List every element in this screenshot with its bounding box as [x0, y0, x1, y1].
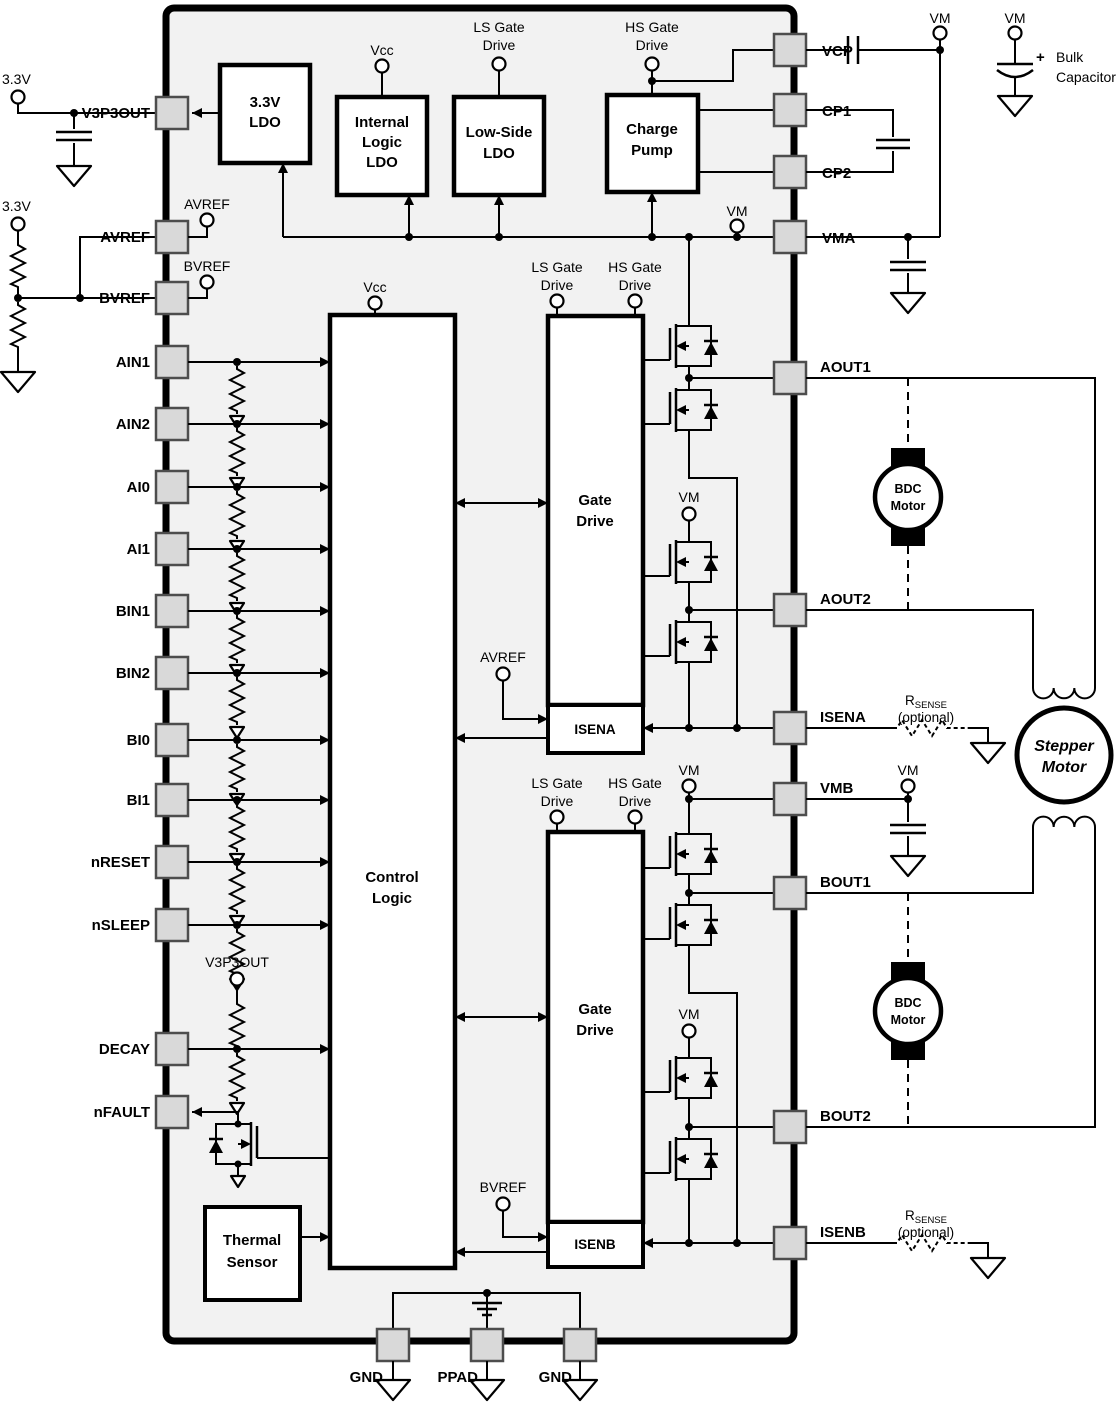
ground-icon [971, 743, 1005, 763]
pin-label-aout2: AOUT2 [820, 591, 871, 608]
pin-vcp [774, 34, 806, 66]
schematic-canvas: 3.3V LDO Internal Logic LDO Low-Side LDO… [0, 0, 1118, 1411]
block-lsldo-label: Low-Side [466, 124, 533, 141]
vm-b-top-terminal-icon [683, 780, 696, 793]
bdc-motor-b: BDC Motor [875, 893, 941, 1127]
pin-gnd-2 [564, 1329, 596, 1361]
pin-label-nfault: nFAULT [94, 1104, 150, 1121]
vm-a-mid-terminal-icon [683, 508, 696, 521]
pin-label-ai1: AI1 [127, 541, 150, 558]
isena-rsense: RSENSE (optional) [806, 693, 1005, 763]
hs-gate-terminal-label2: Drive [636, 37, 669, 53]
block-illdo-label: Internal [355, 114, 409, 131]
pin-label-bin1: BIN1 [116, 603, 150, 620]
vm-bulk-label: VM [1005, 10, 1026, 26]
supply-3v3-terminal-icon2 [12, 218, 25, 231]
bulk-capacitor: VM + Bulk Capacitor [997, 10, 1116, 116]
ground-icon [1, 372, 35, 392]
block-gdb-label2: Drive [576, 1022, 614, 1039]
bvref-isenb-label: BVREF [480, 1179, 527, 1195]
bdc-b-label: BDC [894, 996, 921, 1010]
bvref-terminal-icon [201, 276, 214, 289]
pin-label-bvref: BVREF [99, 290, 150, 307]
bdc-a-label: BDC [894, 482, 921, 496]
vm-vmb-terminal-icon [902, 780, 915, 793]
pin-label-isenb: ISENB [820, 1224, 866, 1241]
hs-gdb-terminal-icon [629, 811, 642, 824]
stepper-winding-b-icon [1033, 817, 1095, 827]
pin-bi1 [156, 784, 188, 816]
hs-gda-terminal-icon [629, 295, 642, 308]
pin-label-ppad: PPAD [437, 1369, 478, 1386]
pin-v3p3out [156, 97, 188, 129]
bulk-label2: Capacitor [1056, 69, 1116, 85]
block-cp-label2: Pump [631, 142, 673, 159]
control-logic: Vcc Control Logic [330, 279, 455, 1268]
vm-vcp-terminal-icon [934, 27, 947, 40]
bdc-motor-a-icon [875, 464, 941, 530]
vm-bulk-terminal-icon [1009, 27, 1022, 40]
bvref-terminal-label: BVREF [184, 258, 231, 274]
block-gda-label2: Drive [576, 513, 614, 530]
ls-gdb-label2: Drive [541, 793, 574, 809]
pin-bvref [156, 282, 188, 314]
pin-label-ai0: AI0 [127, 479, 150, 496]
pin-nsleep [156, 909, 188, 941]
pin-label-v3p3out: V3P3OUT [82, 105, 150, 122]
hs-gda-label: HS Gate [608, 259, 662, 275]
block-cl-label: Control [365, 869, 418, 886]
v3p3out-terminal-label: V3P3OUT [205, 954, 269, 970]
block-cl-label2: Logic [372, 890, 412, 907]
pin-label-isena: ISENA [820, 709, 866, 726]
bdc-motor-a: BDC Motor [875, 378, 941, 610]
pin-label-avref: AVREF [100, 229, 150, 246]
vcc-terminal-label: Vcc [370, 42, 393, 58]
ls-gate-terminal-icon [493, 58, 506, 71]
ground-icon [891, 293, 925, 313]
pin-label-vmb: VMB [820, 780, 854, 797]
ground-icon [57, 166, 91, 186]
pin-label-bout2: BOUT2 [820, 1108, 871, 1125]
block-cp-label: Charge [626, 121, 678, 138]
pin-avref [156, 221, 188, 253]
pin-label-aout1: AOUT1 [820, 359, 871, 376]
bdc-a-label2: Motor [891, 499, 926, 513]
vm-terminal-label: VM [727, 203, 748, 219]
pin-vma [774, 221, 806, 253]
avref-terminal-label: AVREF [184, 196, 230, 212]
bvref-isenb-terminal-icon [497, 1198, 510, 1211]
right-externals: VM VM + Bulk Capacitor Stepper Motor [806, 10, 1116, 1278]
pin-label-decay: DECAY [99, 1041, 150, 1058]
vm-b-mid-terminal-icon [683, 1025, 696, 1038]
block-3v3-ldo-label2: LDO [249, 114, 281, 131]
ls-gda-terminal-icon [551, 295, 564, 308]
plus-sign: + [1036, 49, 1045, 66]
vcc-terminal-icon [376, 60, 389, 73]
pin-decay [156, 1033, 188, 1065]
ls-gdb-label: LS Gate [531, 775, 583, 791]
pin-bi0 [156, 724, 188, 756]
pin-isenb [774, 1227, 806, 1259]
chip-outline [166, 8, 794, 1341]
rsense-b-label: RSENSE [905, 1208, 947, 1226]
block-isenb-label: ISENB [574, 1237, 616, 1252]
pin-label-cp1: CP1 [822, 103, 851, 120]
pin-label-gnd1: GND [350, 1369, 384, 1386]
pin-label-cp2: CP2 [822, 165, 851, 182]
supply-3v3-terminal-icon [12, 91, 25, 104]
block-control-logic [330, 315, 455, 1268]
ground-icon [998, 96, 1032, 116]
pin-label-gnd2: GND [539, 1369, 573, 1386]
block-lsldo-label2: LDO [483, 145, 515, 162]
hs-gate-terminal-label: HS Gate [625, 19, 679, 35]
ground-icon [971, 1258, 1005, 1278]
pin-ai0 [156, 471, 188, 503]
hs-gda-label2: Drive [619, 277, 652, 293]
pin-bin1 [156, 595, 188, 627]
vcc-cl-terminal-icon [369, 297, 382, 310]
pin-label-nsleep: nSLEEP [92, 917, 150, 934]
pin-gnd-1 [377, 1329, 409, 1361]
block-gda-label: Gate [578, 492, 611, 509]
vcc-cl-terminal-label: Vcc [363, 279, 386, 295]
pin-label-bi1: BI1 [127, 792, 150, 809]
ls-gate-terminal-label2: Drive [483, 37, 516, 53]
pin-vmb [774, 783, 806, 815]
avref-terminal-icon [201, 214, 214, 227]
bulk-label: Bulk [1056, 49, 1084, 65]
pin-nreset [156, 846, 188, 878]
block-thermal-label2: Sensor [227, 1254, 278, 1271]
block-isena-label: ISENA [574, 722, 616, 737]
pin-label-nreset: nRESET [91, 854, 150, 871]
hs-gdb-label2: Drive [619, 793, 652, 809]
stepper-motor-label2: Motor [1042, 759, 1087, 776]
pin-label-ain1: AIN1 [116, 354, 150, 371]
pin-ppad [471, 1329, 503, 1361]
ground-icon [891, 856, 925, 876]
pin-ain2 [156, 408, 188, 440]
vm-vcp-label: VM [930, 10, 951, 26]
pin-isena [774, 712, 806, 744]
block-illdo-label2: Logic [362, 134, 402, 151]
pin-label-vma: VMA [822, 230, 856, 247]
stepper-motor-label: Stepper [1034, 738, 1094, 755]
pin-label-bi0: BI0 [127, 732, 150, 749]
divider-resistor-icon2 [11, 302, 25, 350]
hs-gdb-label: HS Gate [608, 775, 662, 791]
ls-gdb-terminal-icon [551, 811, 564, 824]
pin-aout1 [774, 362, 806, 394]
pin-label-bin2: BIN2 [116, 665, 150, 682]
block-thermal-label: Thermal [223, 1232, 281, 1249]
supply-3v3-label2: 3.3V [2, 198, 31, 214]
vm-b-top-label: VM [679, 762, 700, 778]
vm-a-mid-label: VM [679, 489, 700, 505]
v3p3out-terminal-icon [231, 973, 244, 986]
ls-gda-label: LS Gate [531, 259, 583, 275]
pin-bout1 [774, 877, 806, 909]
block-gate-drive-a [548, 316, 643, 705]
vm-b-mid-label: VM [679, 1006, 700, 1022]
bdc-b-label2: Motor [891, 1013, 926, 1027]
pin-aout2 [774, 594, 806, 626]
rsense-b-optional-label: (optional) [898, 1225, 954, 1240]
avref-isena-label: AVREF [480, 649, 526, 665]
pin-bout2 [774, 1111, 806, 1143]
block-gdb-label: Gate [578, 1001, 611, 1018]
vm-terminal-icon [731, 220, 744, 233]
pin-label-bout1: BOUT1 [820, 874, 871, 891]
pin-ain1 [156, 346, 188, 378]
ls-gda-label2: Drive [541, 277, 574, 293]
block-3v3-ldo-label: 3.3V [250, 94, 281, 111]
stepper-winding-a-icon [1033, 688, 1095, 698]
bdc-motor-b-icon [875, 978, 941, 1044]
block-diagram: 3.3V LDO Internal Logic LDO Low-Side LDO… [0, 0, 1118, 1411]
isenb-rsense: RSENSE (optional) [806, 1208, 1005, 1278]
divider-resistor-icon [11, 242, 25, 290]
pin-cp1 [774, 94, 806, 126]
pin-nfault [156, 1096, 188, 1128]
vm-vmb-label: VM [898, 762, 919, 778]
stepper-motor-icon [1017, 708, 1111, 802]
supply-3v3-label: 3.3V [2, 71, 31, 87]
avref-isena-terminal-icon [497, 668, 510, 681]
pin-cp2 [774, 156, 806, 188]
pin-label-ain2: AIN2 [116, 416, 150, 433]
rsense-a-label: RSENSE [905, 693, 947, 711]
pin-bin2 [156, 657, 188, 689]
block-illdo-label3: LDO [366, 154, 398, 171]
hs-gate-terminal-icon [646, 58, 659, 71]
rsense-a-optional-label: (optional) [898, 710, 954, 725]
ls-gate-terminal-label: LS Gate [473, 19, 525, 35]
pin-ai1 [156, 533, 188, 565]
